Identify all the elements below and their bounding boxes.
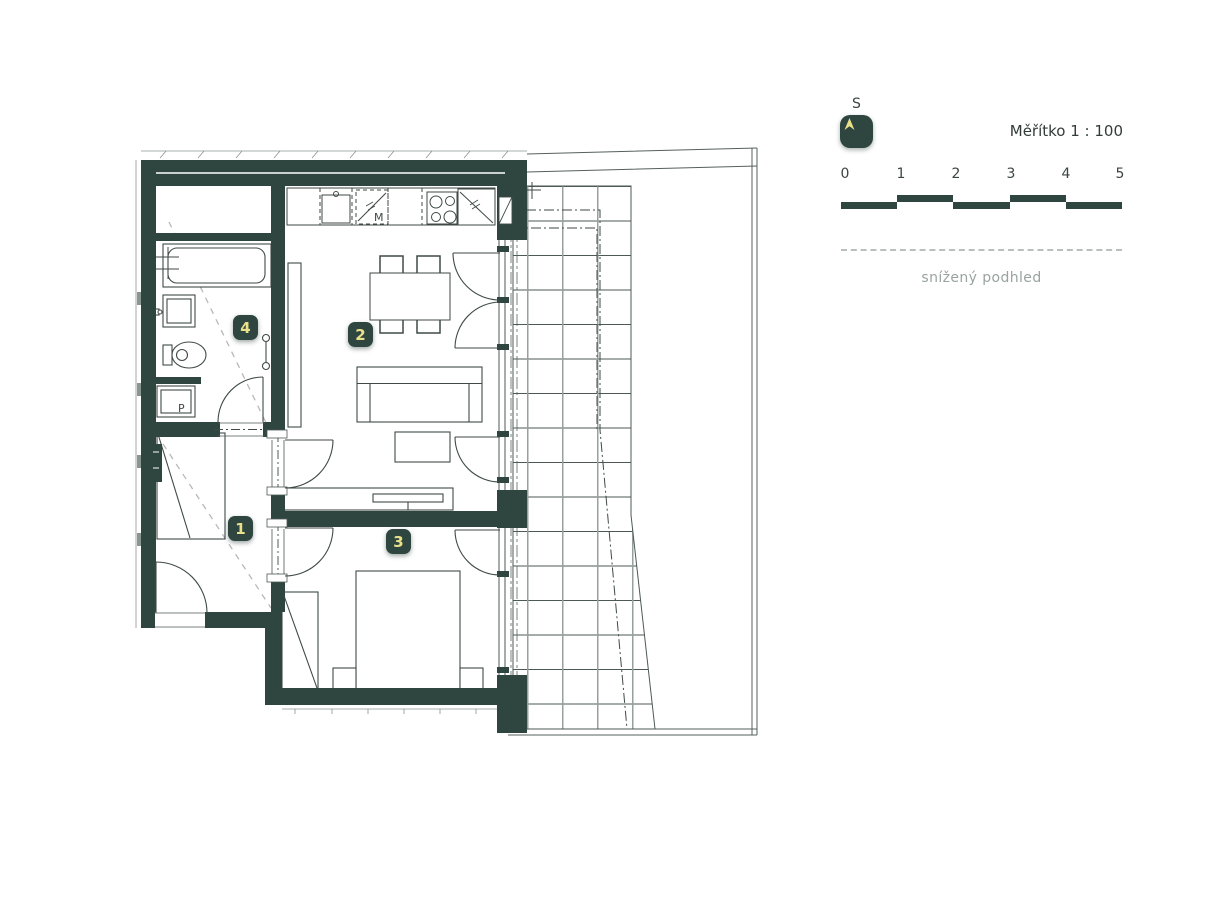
scale-tick: 5 [1116,166,1125,182]
scale-segment [953,202,1009,209]
nightstand [333,668,356,690]
window-glazing [499,240,505,676]
room-label-4: 4 [233,315,258,340]
dishwasher-label: M [374,211,384,224]
window-mullion [497,490,527,528]
entry-door [156,562,207,613]
dining-set [370,256,450,333]
towel-rail [263,335,270,370]
scale-tick: 2 [952,166,961,182]
kitchen-sink [322,192,350,224]
electrical-box [151,444,162,482]
scale-segment [1066,202,1122,209]
nightstand [460,668,483,690]
corner-duct [499,197,512,224]
living-room-furniture [282,256,482,510]
bedroom-door [285,528,333,576]
scale-tick: 3 [1007,166,1016,182]
tv-sideboard [282,488,453,510]
scale-bar: 0 1 2 3 4 5 [841,163,1122,213]
floor-plan-page: M [0,0,1224,900]
room-number: 2 [355,326,365,344]
room-label-1: 1 [228,516,253,541]
balcony-french-door-upper [453,253,500,348]
bathroom-door [218,377,263,422]
wall-niche-band [141,233,285,241]
north-label: S [840,96,873,112]
terrace-tile-grid [513,186,655,729]
wall-step [265,628,282,705]
washing-machine [157,386,195,417]
bedroom-balcony-door [455,530,500,575]
scale-segment [897,195,953,202]
washing-machine-label: P [178,402,185,415]
toilet [163,342,206,368]
pillar-southeast [497,675,527,733]
bathroom-sink [150,295,195,327]
room-number: 4 [240,319,250,337]
scale-segment [841,202,897,209]
scale-tick: 4 [1062,166,1071,182]
balcony-door-lower [455,437,500,482]
wall-west [141,160,156,628]
tall-cabinet [288,263,301,427]
sofa [357,367,482,422]
door-thresholds [155,423,287,628]
room-label-2: 2 [348,322,373,347]
bedroom-wardrobe [282,592,318,689]
bedroom-furniture [282,571,483,690]
bathtub [147,244,271,287]
coffee-table [395,432,450,462]
room-number: 1 [235,520,245,538]
room-number: 3 [393,533,403,551]
wall-living-bedroom [282,511,497,527]
lowered-ceiling-label: snížený podhled [841,270,1122,286]
scale-text: Měřítko 1 : 100 [1010,122,1123,140]
scale-tick: 0 [841,166,850,182]
fridge [458,189,495,225]
north-arrow-badge [840,115,873,148]
north-arrow-icon [840,115,859,134]
wall-bath-east [271,186,285,422]
dining-table [370,273,450,320]
lowered-ceiling-divider [841,249,1122,251]
scale-segment [1010,195,1066,202]
terrace [508,148,757,735]
kitchen-counter [287,188,495,225]
scale-tick: 1 [897,166,906,182]
tv [373,494,443,502]
living-room-door [285,440,333,488]
cooktop [427,192,457,224]
bed [356,571,460,690]
room-label-3: 3 [386,529,411,554]
wall-south [282,688,497,705]
